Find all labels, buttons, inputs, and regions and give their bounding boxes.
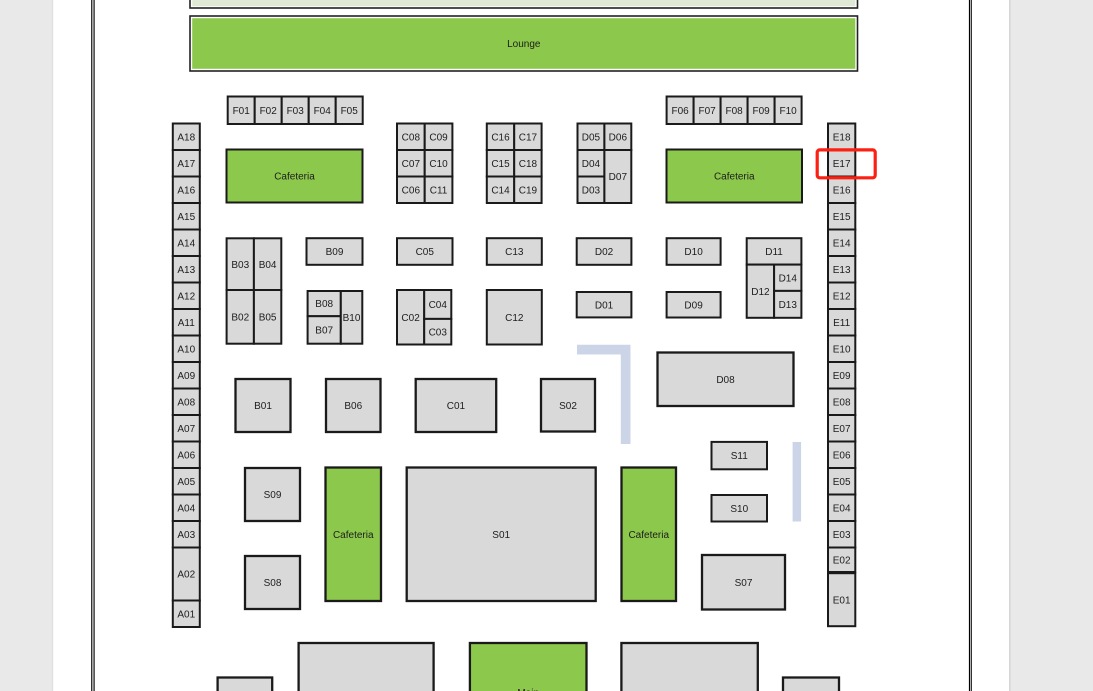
- svg-text:E03: E03: [833, 530, 851, 541]
- svg-text:C04: C04: [429, 300, 448, 311]
- svg-text:A17: A17: [177, 159, 195, 170]
- svg-text:C16: C16: [491, 132, 510, 143]
- svg-text:A05: A05: [177, 477, 195, 488]
- svg-text:E04: E04: [833, 503, 851, 514]
- svg-text:S02: S02: [559, 401, 577, 412]
- svg-text:C01: C01: [447, 401, 466, 412]
- svg-text:E16: E16: [833, 185, 851, 196]
- svg-text:F01: F01: [233, 106, 251, 117]
- svg-text:B04: B04: [259, 260, 277, 271]
- svg-text:D09: D09: [684, 300, 703, 311]
- svg-text:Cafeteria: Cafeteria: [714, 172, 755, 183]
- svg-text:A15: A15: [177, 212, 195, 223]
- svg-text:F05: F05: [341, 106, 359, 117]
- svg-text:D03: D03: [582, 185, 601, 196]
- svg-text:S01: S01: [492, 530, 510, 541]
- svg-text:E08: E08: [833, 397, 851, 408]
- svg-text:C17: C17: [519, 132, 538, 143]
- svg-text:B01: B01: [254, 401, 272, 412]
- svg-text:B10: B10: [343, 313, 361, 324]
- svg-text:Cafeteria: Cafeteria: [333, 530, 374, 541]
- svg-text:Cafeteria: Cafeteria: [628, 530, 669, 541]
- svg-text:E07: E07: [833, 424, 851, 435]
- svg-text:B03: B03: [231, 260, 249, 271]
- svg-text:D08: D08: [716, 375, 735, 386]
- svg-text:S09: S09: [264, 490, 282, 501]
- svg-text:Cafeteria: Cafeteria: [274, 172, 315, 183]
- svg-text:E11: E11: [833, 318, 850, 329]
- svg-text:C03: C03: [429, 327, 448, 338]
- svg-text:E13: E13: [833, 265, 851, 276]
- svg-text:F02: F02: [260, 106, 278, 117]
- svg-text:D13: D13: [779, 300, 798, 311]
- svg-text:C05: C05: [416, 247, 435, 258]
- svg-text:C19: C19: [519, 185, 538, 196]
- svg-text:S08: S08: [264, 578, 282, 589]
- svg-text:A12: A12: [177, 291, 195, 302]
- svg-text:C06: C06: [402, 185, 421, 196]
- svg-text:E15: E15: [833, 212, 851, 223]
- svg-text:C09: C09: [429, 132, 448, 143]
- svg-text:A07: A07: [177, 424, 195, 435]
- svg-text:S11: S11: [731, 451, 748, 462]
- svg-text:A11: A11: [178, 318, 195, 329]
- svg-text:A09: A09: [177, 371, 195, 382]
- svg-text:D12: D12: [751, 287, 770, 298]
- svg-text:E10: E10: [833, 344, 851, 355]
- svg-text:B08: B08: [315, 299, 333, 310]
- svg-text:S07: S07: [735, 578, 753, 589]
- svg-text:D11: D11: [765, 247, 783, 258]
- svg-text:C02: C02: [401, 313, 420, 324]
- svg-text:C18: C18: [519, 159, 538, 170]
- svg-text:F07: F07: [698, 106, 716, 117]
- svg-text:A16: A16: [177, 185, 195, 196]
- svg-text:F08: F08: [725, 106, 743, 117]
- svg-text:B05: B05: [259, 313, 277, 324]
- svg-text:D07: D07: [609, 172, 628, 183]
- svg-text:E17: E17: [833, 159, 851, 170]
- svg-text:D05: D05: [582, 132, 601, 143]
- svg-text:C15: C15: [491, 159, 510, 170]
- svg-text:C12: C12: [505, 313, 524, 324]
- svg-text:A10: A10: [177, 344, 195, 355]
- svg-text:A18: A18: [177, 132, 195, 143]
- svg-text:A14: A14: [177, 238, 195, 249]
- svg-text:C08: C08: [402, 132, 421, 143]
- svg-text:D10: D10: [684, 247, 703, 258]
- svg-text:A01: A01: [177, 609, 195, 620]
- svg-text:E18: E18: [833, 132, 851, 143]
- svg-text:C13: C13: [505, 247, 524, 258]
- svg-text:A08: A08: [177, 397, 195, 408]
- svg-text:D01: D01: [595, 300, 614, 311]
- svg-text:B09: B09: [326, 247, 344, 258]
- svg-text:E02: E02: [833, 555, 851, 566]
- svg-text:D04: D04: [582, 159, 601, 170]
- svg-text:E01: E01: [833, 595, 851, 606]
- svg-text:D06: D06: [609, 132, 628, 143]
- svg-text:E14: E14: [833, 238, 851, 249]
- svg-text:C10: C10: [429, 159, 448, 170]
- svg-text:B07: B07: [315, 326, 333, 337]
- svg-text:A04: A04: [177, 503, 195, 514]
- svg-text:A06: A06: [177, 450, 195, 461]
- svg-text:B06: B06: [344, 401, 362, 412]
- svg-text:C07: C07: [402, 159, 421, 170]
- svg-text:E09: E09: [833, 371, 851, 382]
- svg-text:F06: F06: [671, 106, 689, 117]
- svg-text:E12: E12: [833, 291, 851, 302]
- svg-text:A02: A02: [177, 570, 195, 581]
- svg-text:C14: C14: [491, 185, 510, 196]
- svg-text:A13: A13: [177, 265, 195, 276]
- svg-text:D02: D02: [595, 247, 614, 258]
- svg-text:D14: D14: [779, 273, 798, 284]
- svg-text:F10: F10: [779, 106, 797, 117]
- svg-text:Lounge: Lounge: [507, 39, 541, 50]
- svg-text:F09: F09: [752, 106, 770, 117]
- svg-text:F03: F03: [287, 106, 305, 117]
- svg-text:B02: B02: [231, 313, 249, 324]
- svg-text:E05: E05: [833, 477, 851, 488]
- svg-text:S10: S10: [730, 504, 748, 515]
- svg-text:E06: E06: [833, 450, 851, 461]
- svg-text:F04: F04: [314, 106, 332, 117]
- svg-text:A03: A03: [177, 530, 195, 541]
- svg-text:C11: C11: [430, 185, 448, 196]
